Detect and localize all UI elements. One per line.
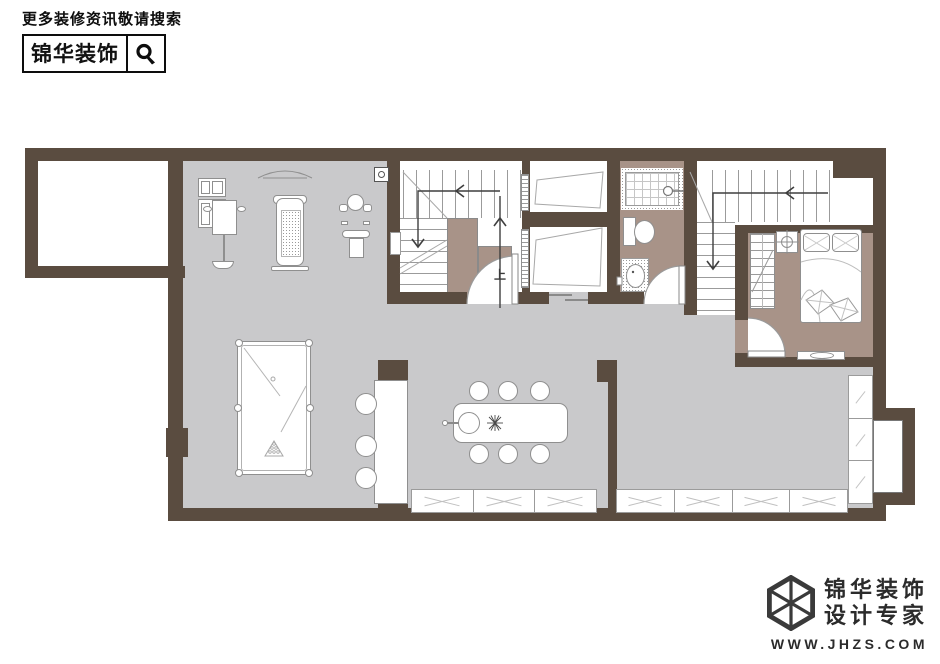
treadmill	[276, 198, 304, 266]
dining-chair	[469, 444, 489, 464]
glass-panel	[521, 174, 529, 211]
base-cabinets	[617, 489, 848, 513]
sink-basin	[626, 264, 645, 288]
cube-wireframe-icon	[767, 575, 815, 631]
vanity-counter	[621, 258, 649, 292]
exercise-station-handle	[203, 206, 212, 212]
lazy-susan	[458, 412, 480, 434]
column-marker	[374, 167, 389, 182]
dining-chair	[530, 381, 550, 401]
pillow	[803, 233, 830, 252]
stair-upper-flight	[447, 218, 478, 298]
exercise-station	[198, 178, 226, 197]
cabinet-cell	[616, 489, 675, 513]
cabinet-cell	[411, 489, 474, 513]
pool-pocket	[235, 469, 243, 477]
pool-pocket	[305, 339, 313, 347]
cabinet-cell	[848, 418, 873, 462]
exercise-bike-base	[342, 230, 370, 238]
wardrobe	[750, 233, 775, 309]
wall-segment	[168, 161, 183, 521]
pool-pocket	[306, 404, 314, 412]
wall-segment	[682, 292, 697, 304]
dining-chair	[469, 381, 489, 401]
stair-treads	[697, 222, 735, 315]
cabinet-cell	[732, 489, 791, 513]
table-lamp	[781, 236, 793, 248]
footer-brand-subtitle: 设计专家	[824, 603, 928, 629]
treadmill-base	[271, 266, 309, 271]
toilet-bowl	[634, 220, 655, 244]
column-marker-dot	[378, 171, 385, 178]
wall-segment	[873, 161, 886, 412]
page: 更多装修资讯敬请搜索 锦华装饰	[0, 0, 940, 664]
exercise-bike-seat	[347, 194, 364, 211]
bay-niche-panel	[873, 420, 903, 493]
room-empty-topleft-floor	[38, 161, 168, 266]
decor-plate	[810, 352, 834, 359]
footer-brand-block: 锦华装饰 设计专家 WWW.JHZS.COM	[767, 575, 928, 652]
wall-segment	[873, 491, 886, 521]
exercise-station-seat	[212, 200, 237, 235]
bar-stool	[355, 467, 377, 489]
wall-segment	[25, 148, 38, 278]
wall-segment	[607, 161, 620, 304]
floorplan: 上	[0, 0, 940, 664]
bar-stool	[355, 435, 377, 457]
wall-segment	[522, 212, 607, 227]
tall-cabinets	[848, 376, 873, 504]
stairs-up-label: 上	[494, 266, 506, 283]
kitchen-area-floor	[617, 360, 873, 508]
dining-chair	[498, 381, 518, 401]
treadmill-belt	[281, 210, 301, 257]
cabinet-cell	[534, 489, 597, 513]
under-stair-niche	[390, 232, 401, 255]
stair-treads	[403, 170, 522, 218]
shower-tile-grid	[625, 172, 679, 206]
dining-chair	[530, 444, 550, 464]
wall-segment	[378, 360, 408, 381]
pool-table-rail	[241, 345, 307, 471]
wall-segment	[903, 408, 915, 505]
exercise-station-post	[223, 235, 225, 262]
exercise-bike-handle	[339, 204, 348, 212]
cabinet-cell	[674, 489, 733, 513]
exercise-bike-stand	[349, 238, 364, 258]
wall-segment	[735, 233, 748, 320]
stair-treads	[400, 218, 447, 296]
cabinet-cell	[789, 489, 848, 513]
exercise-bike-pedal	[341, 221, 348, 225]
bar-counter	[374, 380, 408, 504]
exercise-bike-handle	[363, 204, 372, 212]
footer-brand-name: 锦华装饰	[824, 577, 928, 603]
footer-url: WWW.JHZS.COM	[767, 636, 928, 652]
bar-stool	[355, 393, 377, 415]
cabinet-cell	[848, 375, 873, 419]
pool-pocket	[234, 404, 242, 412]
pool-pocket	[235, 339, 243, 347]
pillow	[832, 233, 859, 252]
wall-pilaster	[166, 428, 188, 457]
glass-panel	[521, 229, 529, 288]
pool-table	[237, 341, 311, 475]
wall-segment	[25, 266, 185, 278]
bedroom-doorway-floor	[735, 320, 748, 353]
pool-pocket	[305, 469, 313, 477]
base-cabinets	[412, 489, 597, 513]
wall-segment	[515, 292, 549, 304]
stair-treads	[712, 170, 833, 222]
cabinet-cell	[848, 460, 873, 504]
wall-segment	[387, 292, 467, 304]
exercise-station-handle	[237, 206, 246, 212]
cabinet-cell	[473, 489, 536, 513]
wall-segment	[597, 360, 617, 382]
wall-segment	[25, 148, 886, 161]
wall-segment	[588, 292, 644, 304]
exercise-bike-pedal	[363, 221, 370, 225]
dining-chair	[498, 444, 518, 464]
shower-tray	[621, 168, 683, 210]
